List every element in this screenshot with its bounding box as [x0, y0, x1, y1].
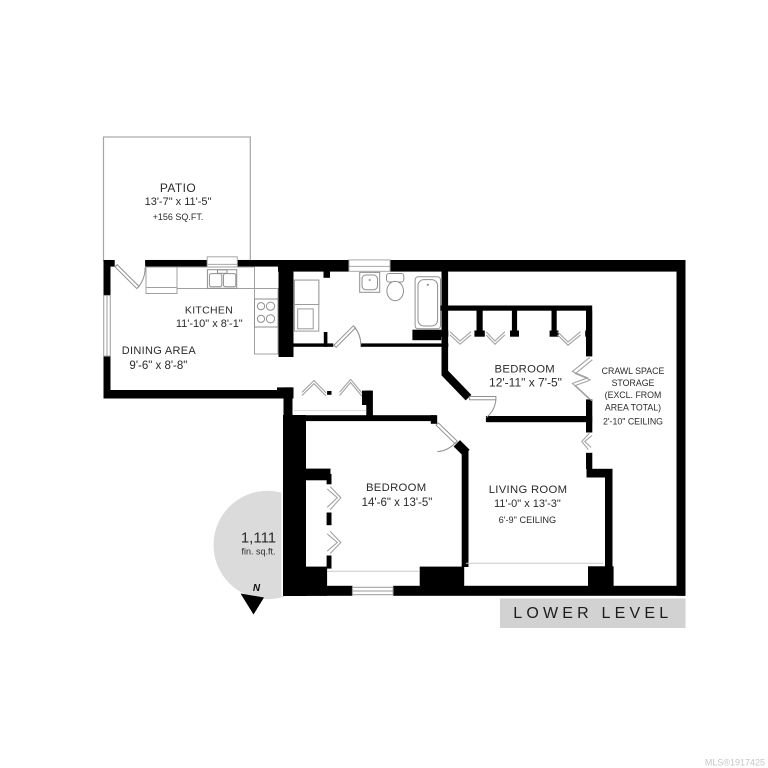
- svg-text:LIVING ROOM: LIVING ROOM: [489, 484, 568, 496]
- svg-text:(EXCL. FROM: (EXCL. FROM: [605, 390, 662, 400]
- svg-text:AREA TOTAL): AREA TOTAL): [605, 403, 661, 413]
- svg-text:13'-7" x 11'-5": 13'-7" x 11'-5": [145, 196, 212, 208]
- svg-text:PATIO: PATIO: [160, 181, 196, 195]
- svg-text:fin. sq.ft.: fin. sq.ft.: [241, 547, 275, 557]
- svg-text:CRAWL SPACE: CRAWL SPACE: [602, 366, 665, 376]
- svg-text:KITCHEN: KITCHEN: [185, 304, 233, 316]
- svg-text:11'-10" x 8'-1": 11'-10" x 8'-1": [176, 318, 243, 330]
- svg-text:STORAGE: STORAGE: [612, 378, 655, 388]
- svg-text:2'-10" CEILING: 2'-10" CEILING: [603, 417, 663, 427]
- svg-text:14'-6" x 13'-5": 14'-6" x 13'-5": [362, 497, 433, 509]
- svg-text:LOWER LEVEL: LOWER LEVEL: [513, 605, 672, 622]
- svg-text:12'-11" x 7'-5": 12'-11" x 7'-5": [489, 376, 562, 390]
- svg-text:1,111: 1,111: [241, 530, 276, 547]
- svg-text:11'-0" x 13'-3": 11'-0" x 13'-3": [494, 498, 561, 510]
- svg-text:6'-9" CEILING: 6'-9" CEILING: [499, 515, 557, 525]
- svg-text:+156 SQ.FT.: +156 SQ.FT.: [153, 212, 204, 222]
- svg-text:DINING AREA: DINING AREA: [122, 345, 197, 357]
- svg-text:N: N: [253, 583, 261, 594]
- svg-text:BEDROOM: BEDROOM: [495, 364, 555, 376]
- svg-text:BEDROOM: BEDROOM: [366, 482, 426, 494]
- svg-text:9'-6" x 8'-8": 9'-6" x 8'-8": [129, 360, 187, 372]
- svg-text:MLS®1917425: MLS®1917425: [705, 758, 765, 768]
